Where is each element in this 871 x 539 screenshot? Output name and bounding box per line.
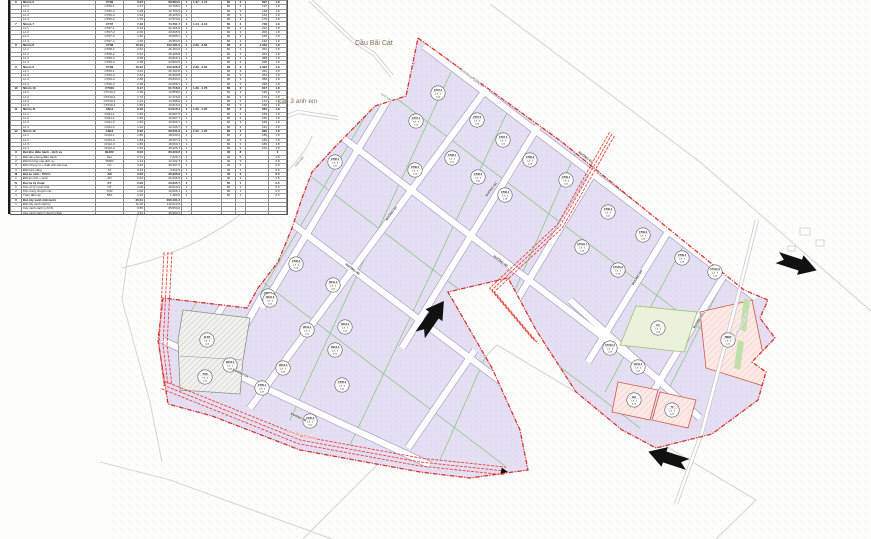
svg-text:CT010-4: CT010-4 [605,344,615,347]
svg-text:1,8 - 3: 1,8 - 3 [679,259,686,261]
svg-text:1,8 - 3: 1,8 - 3 [332,351,339,353]
plot-label: CT09-41,8 - 32,38 [675,251,689,265]
svg-text:CT08-2: CT08-2 [474,173,483,176]
svg-text:1,8 - 3: 1,8 - 3 [304,331,311,333]
svg-text:CN11-3: CN11-3 [266,296,275,299]
svg-text:CT09-4: CT09-4 [678,254,687,257]
svg-text:CN12-2: CN12-2 [226,361,235,364]
svg-text:1,8 - 3: 1,8 - 3 [502,196,509,198]
svg-text:1,8 - 3: 1,8 - 3 [500,141,507,143]
svg-text:CT010-1: CT010-1 [577,243,587,246]
plot-label: CT09-31,8 - 32,58 [636,228,650,242]
plot-label: CT010-31,8 - 31,44 [708,265,722,279]
svg-text:ĐH: ĐH [632,396,636,399]
svg-text:1,8 - 3: 1,8 - 3 [474,121,481,123]
svg-text:1,8 - 3: 1,8 - 3 [475,178,482,180]
plot-label: CT08-31,8 - 32,58 [523,153,537,167]
svg-text:CT07-1: CT07-1 [412,117,421,120]
plot-label: CT08-21,8 - 32,64 [471,170,485,184]
svg-text:CN11-1: CN11-1 [634,363,643,366]
svg-text:1,8 - 3: 1,8 - 3 [712,273,719,275]
site-plan-page: CT06-11,8 - 31,37CT06-21,8 - 31,28CT06-3… [0,0,871,539]
plot-label: CT06-21,8 - 31,28 [408,163,422,177]
existing-building [816,240,824,246]
plot-label: CT09-21,8 - 32,64 [601,205,615,219]
plot-label: TX1,8 - 30,43 [665,403,679,417]
svg-text:CT05-1: CT05-1 [258,384,267,387]
svg-text:1,8 - 3: 1,8 - 3 [280,369,287,371]
svg-text:CT06-3: CT06-3 [292,260,301,263]
svg-text:XLNT: XLNT [204,336,211,339]
plot-label: CT07-41,8 - 31,66 [496,133,510,147]
plot-label: CN12-41,8 - 31,52 [328,343,342,357]
svg-text:1,8 - 3: 1,8 - 3 [267,301,274,303]
svg-text:TX: TX [670,406,674,409]
svg-text:CN12-4: CN12-4 [331,346,340,349]
svg-text:1,8 - 3: 1,8 - 3 [435,94,442,96]
svg-text:CN11-2: CN11-2 [329,281,338,284]
plot-label: CT05-31,8 - 31,44 [335,378,349,392]
svg-text:1,8 - 3: 1,8 - 3 [307,422,314,424]
svg-text:CT09-2: CT09-2 [604,208,613,211]
svg-text:1,8 - 3: 1,8 - 3 [579,248,586,250]
plot-label: CT010-11,8 - 31,39 [575,240,589,254]
svg-text:CN11-4: CN11-4 [303,326,312,329]
plot-label: CX1,8 - 31,05 [651,321,665,335]
svg-text:1,8 - 3: 1,8 - 3 [527,161,534,163]
bridge-label-cau-bai-cat: Cầu Bãi Cát [355,40,393,47]
svg-text:1,8 - 3: 1,8 - 3 [202,378,209,380]
svg-text:1,8 - 3: 1,8 - 3 [204,341,211,343]
svg-text:1,8 - 3: 1,8 - 3 [342,328,349,330]
svg-text:CT08-1: CT08-1 [448,154,457,157]
plot-label: CT09-11,8 - 32,62 [559,173,573,187]
svg-text:CN12-1: CN12-1 [341,323,350,326]
existing-building [800,228,810,235]
svg-text:1,8 - 3: 1,8 - 3 [330,286,337,288]
plot-label: CT010-21,8 - 31,76 [611,263,625,277]
plot-label: CN12-31,8 - 31,80 [276,361,290,375]
svg-text:1,8 - 3: 1,8 - 3 [413,122,420,124]
plot-label: ĐH1,8 - 30,72 [627,393,641,407]
svg-text:1,8 - 3: 1,8 - 3 [635,368,642,370]
svg-text:CT010-2: CT010-2 [613,266,623,269]
svg-text:1,8 - 3: 1,8 - 3 [725,341,732,343]
svg-text:1,8 - 3: 1,8 - 3 [412,171,419,173]
plot-label: CN11-31,8 - 31,65 [263,293,277,307]
existing-building [788,246,795,251]
plot-label: CT08-41,8 - 32,38 [498,188,512,202]
svg-text:1,8 - 3: 1,8 - 3 [293,265,300,267]
svg-text:1,8 - 3: 1,8 - 3 [563,181,570,183]
svg-text:1,8 - 3: 1,8 - 3 [332,163,339,165]
svg-text:CT07-4: CT07-4 [499,136,508,139]
svg-text:1,8 - 3: 1,8 - 3 [640,236,647,238]
svg-text:1,8 - 3: 1,8 - 3 [605,213,612,215]
svg-text:CT09-3: CT09-3 [639,231,648,234]
svg-text:1,8 - 3: 1,8 - 3 [449,159,456,161]
plot-label: CN11-21,8 - 31,60 [326,278,340,292]
technical-plot [178,310,250,394]
svg-text:CT07-3: CT07-3 [473,116,482,119]
svg-text:CT08-4: CT08-4 [501,191,510,194]
svg-text:CT010-3: CT010-3 [710,268,720,271]
plot-label: CN11-41,8 - 31,22 [300,323,314,337]
plot-label: CT06-31,8 - 31,64 [289,257,303,271]
svg-text:1,8 - 3: 1,8 - 3 [615,271,622,273]
plot-label: CN11-11,8 - 31,69 [631,360,645,374]
plot-label: CT010-41,8 - 31,58 [603,341,617,355]
svg-text:CT08-3: CT08-3 [526,156,535,159]
svg-text:CT06-1: CT06-1 [331,158,340,161]
plot-label: CT07-31,8 - 31,66 [470,113,484,127]
plot-label: CT06-11,8 - 31,37 [328,155,342,169]
svg-text:CX: CX [656,324,660,327]
svg-text:1,8 - 3: 1,8 - 3 [259,389,266,391]
svg-text:1,8 - 3: 1,8 - 3 [631,401,638,403]
svg-text:TMDV: TMDV [724,336,731,339]
svg-text:1,8 - 3: 1,8 - 3 [339,386,346,388]
land-use-table: 6Nhóm 6CT066.9769,684.041.37 - 1.7460369… [10,0,288,215]
plot-label: CN12-11,8 - 31,80 [338,320,352,334]
svg-text:1,8 - 3: 1,8 - 3 [669,411,676,413]
svg-text:1,8 - 3: 1,8 - 3 [655,329,662,331]
plot-label: CT07-11,8 - 32,12 [409,114,423,128]
svg-text:CN12-3: CN12-3 [279,364,288,367]
svg-text:CT09-1: CT09-1 [562,176,571,179]
svg-text:CT05-3: CT05-3 [338,381,347,384]
svg-text:CT06-2: CT06-2 [411,166,420,169]
svg-text:CT07-2: CT07-2 [434,89,443,92]
plot-label: TCR1,8 - 31,00 [198,370,212,384]
bridge-label-cau-3-anh-em: cầu 3 anh em [278,98,317,105]
svg-text:1,8 - 3: 1,8 - 3 [607,349,614,351]
svg-text:TCR: TCR [202,373,207,376]
plot-label: CT05-11,8 - 31,37 [255,381,269,395]
plot-label: CT07-21,8 - 32,06 [431,86,445,100]
land-allocation-table: 6Nhóm 6CT066.9769,684.041.37 - 1.7460369… [10,0,287,215]
plot-label: CT08-11,8 - 32,62 [445,151,459,165]
plot-label: XLNT1,8 - 31,06 [200,333,214,347]
